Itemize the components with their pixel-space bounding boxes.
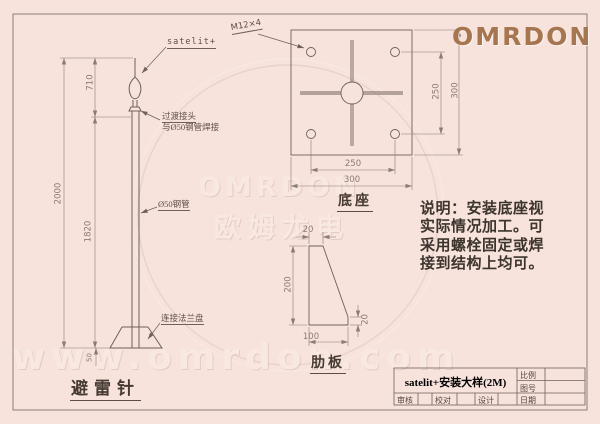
rod-dim-pipe: 1820: [85, 217, 94, 247]
rib-dim-top: 20: [293, 226, 323, 235]
rod-dim-total: 2000: [55, 179, 64, 209]
note-line: 实际情况加工。可: [420, 218, 585, 236]
titleblock-scale-label: 比例: [520, 371, 536, 380]
titleblock-date-label: 日期: [520, 396, 536, 405]
drawing-sheet: OMRDON 欧姆龙电 www.omrdon.com: [0, 0, 600, 424]
titleblock-drawing-title: satelit+安装大样(2M): [394, 374, 517, 390]
note-line: 接到结构上均可。: [420, 255, 585, 273]
base-drawing-title: 底座: [337, 190, 373, 212]
rod-joint-label-line2: 与Ø50钢管焊接: [162, 122, 219, 132]
rib-drawing-title: 肋板: [310, 352, 346, 374]
base-dim-right-inner: 250: [433, 77, 442, 107]
titleblock-design-label: 设计: [478, 396, 494, 405]
rod-flange-label: 连接法兰盘: [161, 313, 204, 325]
titleblock-review-label: 审核: [397, 396, 413, 405]
installation-note: 说明：安装底座视 实际情况加工。可 采用螺栓固定或焊 接到结构上均可。: [420, 200, 585, 273]
rod-drawing-title: 避雷针: [70, 374, 141, 401]
titleblock-drawing-no-label: 图号: [520, 384, 536, 393]
brand-logo: OMRDON: [452, 22, 584, 51]
rib-dim-bottom: 100: [296, 333, 326, 342]
base-dim-bottom-inner: 250: [333, 160, 373, 169]
base-dim-bottom-outer: 300: [332, 176, 372, 185]
titleblock-proof-label: 校对: [435, 396, 451, 405]
rod-pipe-label: Ø50钢管: [158, 199, 190, 211]
note-line: 说明：安装底座视: [420, 200, 585, 218]
note-line: 采用螺栓固定或焊: [420, 237, 585, 255]
rib-dim-right: 20: [362, 305, 371, 335]
rib-dim-left: 200: [285, 270, 294, 300]
base-dim-right-outer: 300: [452, 76, 461, 106]
rod-dim-top: 710: [87, 68, 96, 98]
rod-dim-flange: 50: [86, 343, 95, 373]
rod-tip-label: satelit+: [167, 37, 216, 49]
rod-joint-label-line1: 过渡接头: [162, 111, 196, 123]
